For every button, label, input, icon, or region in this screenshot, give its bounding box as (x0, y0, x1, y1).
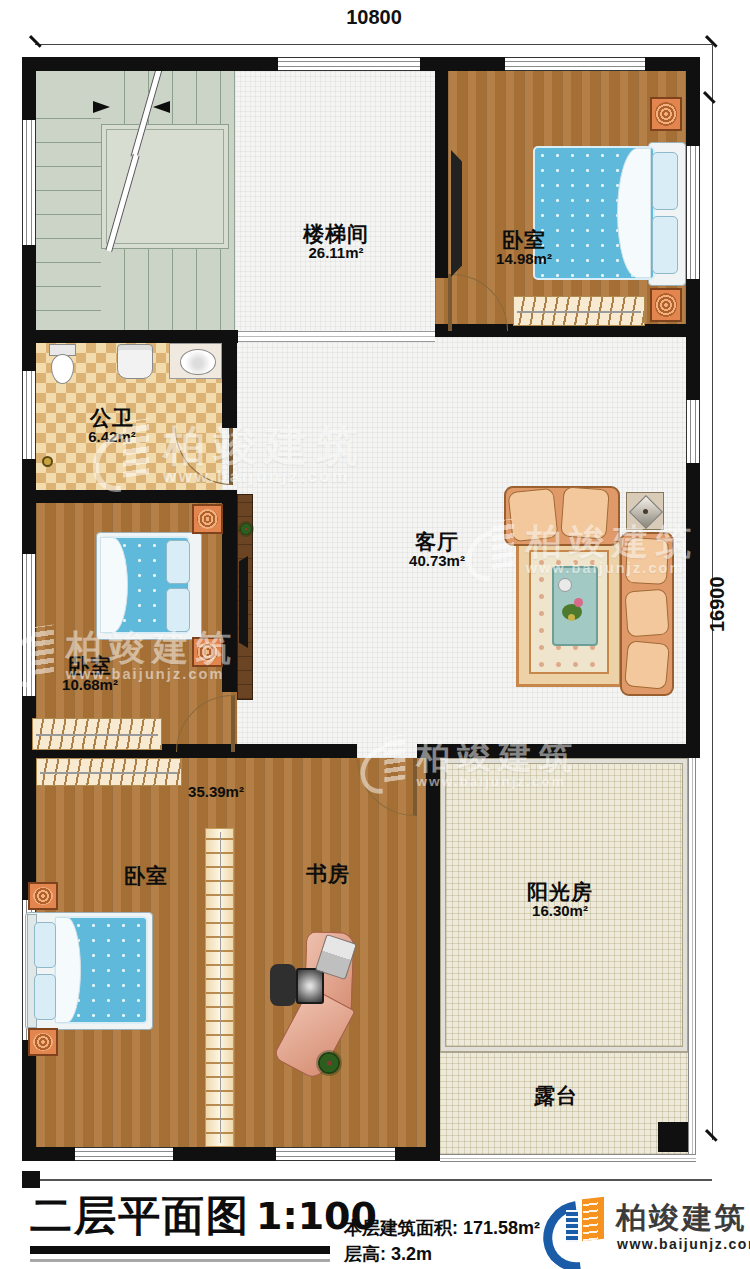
wardrobe (36, 758, 182, 786)
wall-bedroom-left-right (222, 490, 237, 692)
opening-threshold (238, 331, 435, 342)
floor-area-value: 171.58m² (463, 1218, 540, 1238)
top-dimension-line (35, 44, 713, 45)
bedside-rug (32, 718, 162, 750)
window (22, 120, 36, 245)
plant-desk (318, 1052, 340, 1074)
sofa-cushion (560, 486, 609, 539)
stair-direction-arrow (153, 101, 170, 113)
floor-area-label: 本层建筑面积: (344, 1218, 458, 1238)
wall-bathroom-right (222, 330, 237, 428)
bedroom-top-door-floor (435, 278, 448, 324)
wardrobe (513, 296, 645, 326)
nightstand (28, 1028, 58, 1056)
dimension-tick (703, 91, 715, 103)
window (276, 1147, 395, 1161)
nightstand (192, 637, 223, 667)
room-label-bedroom-top: 卧室 14.98m² (496, 228, 552, 268)
tv-living (239, 556, 248, 648)
nightstand (28, 882, 58, 910)
right-dimension-label: 16900 (706, 542, 729, 632)
dimension-tick (29, 35, 41, 47)
window (505, 57, 645, 71)
room-divider (205, 828, 234, 1147)
sink (180, 349, 216, 375)
floor-height-line: 层高: 3.2m (344, 1242, 432, 1266)
stair-treads-upper (101, 69, 231, 124)
window (22, 371, 36, 459)
table-flower-yellow (568, 614, 575, 621)
drawing-title: 二层平面图 (30, 1188, 250, 1244)
wall-stair-bathroom (22, 330, 238, 343)
nightstand (650, 288, 682, 322)
floor-drain (42, 456, 53, 467)
room-label-bedroom-left: 卧室 10.68m² (62, 654, 118, 694)
floor-plan: 10800 16900 (0, 0, 750, 1269)
stair-direction-arrow (93, 101, 110, 113)
nightstand (650, 97, 682, 131)
room-label-bathroom: 公卫 6.42m² (88, 406, 136, 446)
office-chair (270, 964, 296, 1006)
stair-landing (101, 124, 229, 249)
pillow (652, 216, 678, 274)
table-dish (558, 578, 572, 592)
window (75, 1147, 173, 1161)
terrace-glass-wall (440, 1154, 696, 1162)
sofa-cushion (624, 640, 670, 689)
room-label-bedroom-bottom: 卧室 (124, 864, 168, 887)
plant-on-cabinet (240, 523, 252, 535)
label-bottom-combined-area: 35.39m² (188, 784, 244, 801)
wall-living-bottom-right (417, 744, 700, 758)
sofa-cushion (624, 589, 669, 638)
stair-treads-lower (101, 247, 231, 335)
wall-stairwell-bedroom (435, 57, 448, 278)
table-flower-pink (574, 598, 583, 607)
brand-logo-building-orange (582, 1197, 604, 1242)
room-label-stairwell: 楼梯间 26.11m² (303, 222, 369, 262)
window (22, 554, 36, 696)
title-underline-thin (30, 1259, 330, 1262)
tv-bedroom-top (451, 150, 462, 277)
floor-height-label: 层高: (344, 1244, 386, 1264)
brand-url: www.baijunjz.com (617, 1236, 750, 1252)
stair-treads-left (35, 95, 101, 335)
monitor (296, 968, 324, 1004)
title-underline-thick (30, 1246, 330, 1254)
brand-logo-icon (544, 1194, 624, 1262)
room-label-sunroom: 阳光房 16.30m² (527, 880, 593, 920)
window (686, 400, 700, 463)
sofa-cushion (625, 537, 669, 585)
title-block: 二层平面图 1:100 本层建筑面积: 171.58m² 层高: 3.2m 柏竣… (0, 1180, 750, 1269)
pillow (34, 974, 56, 1020)
top-dimension-label: 10800 (346, 6, 402, 29)
pillow (166, 588, 190, 632)
terrace-glass-wall (688, 758, 696, 1154)
staircase (30, 64, 235, 337)
brand-name: 柏竣建筑 (616, 1198, 748, 1239)
floor-area-line: 本层建筑面积: 171.58m² (344, 1216, 540, 1240)
wall-bottomroom-right (426, 744, 440, 1161)
floor-height-value: 3.2m (391, 1244, 432, 1264)
terrace-column (658, 1122, 688, 1152)
end-table-knob (643, 509, 648, 514)
room-label-living: 客厅 40.73m² (409, 530, 465, 570)
washing-machine (117, 344, 153, 379)
brand-logo-swoosh (529, 1187, 627, 1269)
pillow (34, 922, 56, 968)
sofa-cushion (508, 488, 559, 543)
nightstand (192, 504, 223, 534)
window (278, 57, 420, 71)
pillow (166, 540, 190, 584)
room-label-terrace: 露台 (534, 1084, 578, 1107)
window (686, 146, 700, 279)
pillow (652, 152, 678, 210)
stairwell-room-floor (235, 71, 448, 337)
wall-bathroom-bottom (22, 490, 237, 503)
brand-logo-building-blue (566, 1210, 578, 1242)
room-label-study: 书房 (306, 862, 350, 885)
bed-blanket-fold (617, 148, 651, 278)
